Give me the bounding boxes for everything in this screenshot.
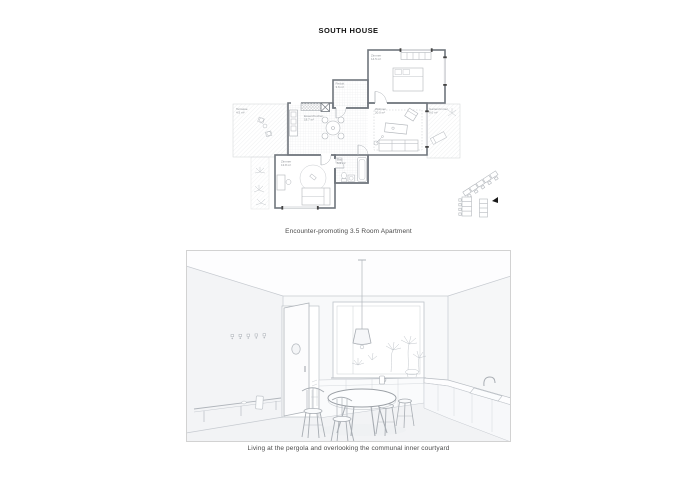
render-caption: Living at the pergola and overlooking th… [0, 445, 697, 452]
plan-caption: Encounter-promoting 3.5 Room Apartment [0, 228, 697, 235]
interior-render-drawing [186, 250, 511, 442]
room-area: 5.5 m² [337, 161, 346, 165]
building-bar-left-icon [459, 197, 472, 216]
room-area: 4.5 m² [236, 111, 245, 115]
floor-plan-drawing: Zimmer 14.5 m² Reduit 3.6 m² Essen/Koche… [225, 40, 470, 212]
location-marker-icon [492, 197, 498, 203]
room-area: 14.5 m² [371, 57, 381, 61]
room-area: 9.0 m² [429, 111, 438, 115]
porthole-window-icon [292, 344, 300, 354]
site-key-drawing [455, 170, 507, 220]
page-title: SOUTH HOUSE [0, 26, 697, 35]
garden-strip [251, 157, 269, 209]
document-page: SOUTH HOUSE [0, 0, 697, 492]
towel-icon [256, 396, 264, 409]
room-area: 3.6 m² [336, 85, 345, 89]
building-bar-right-icon [480, 199, 488, 217]
interior-render-figure [186, 250, 511, 442]
building-row-icon [463, 171, 500, 199]
pergola-door [282, 303, 319, 417]
site-key-diagram [455, 170, 507, 220]
room-area: 20.0 m² [375, 111, 385, 115]
room-area: 18.7 m² [304, 118, 314, 122]
courtyard-window [331, 302, 426, 378]
floor-plan-figure: Zimmer 14.5 m² Reduit 3.6 m² Essen/Koche… [225, 40, 470, 212]
room-area: 13.8 m² [281, 163, 291, 167]
